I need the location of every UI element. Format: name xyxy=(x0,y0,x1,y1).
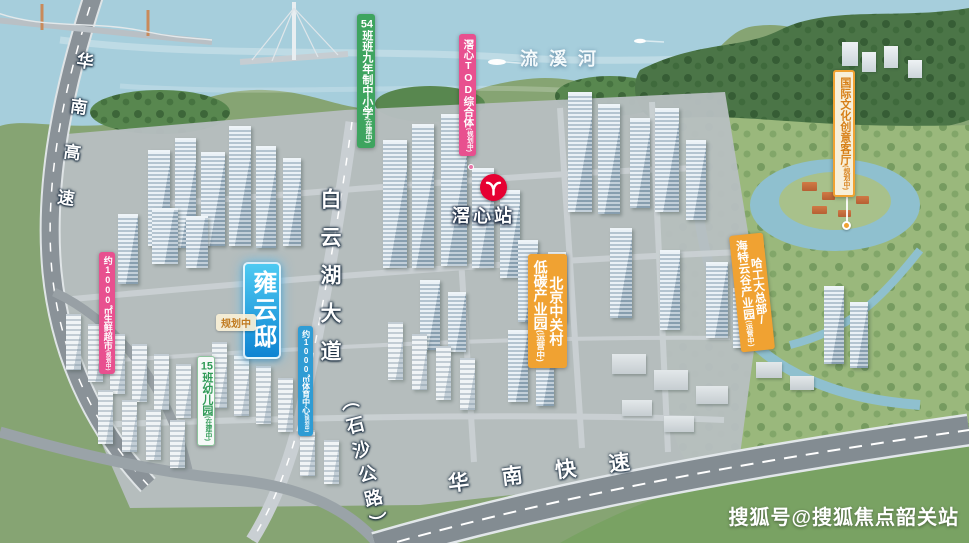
poi-label-school: 54班班九年制中小学(在建中) xyxy=(357,14,375,148)
building xyxy=(436,346,451,400)
river-name: 流溪河 xyxy=(520,45,607,71)
building xyxy=(152,208,178,264)
building xyxy=(696,386,728,404)
status-note: (规划中) xyxy=(842,165,849,190)
school-class-count: 54 xyxy=(361,19,373,30)
building xyxy=(448,292,466,352)
building xyxy=(824,286,844,364)
building xyxy=(383,140,407,268)
building xyxy=(234,354,249,416)
building xyxy=(256,366,271,424)
building xyxy=(612,354,646,374)
status-note: (运营中) xyxy=(745,320,756,347)
kindergarten-class-count: 15 xyxy=(201,361,213,372)
building xyxy=(908,60,922,78)
building xyxy=(176,364,191,418)
building xyxy=(856,196,869,204)
building xyxy=(154,354,169,410)
building xyxy=(132,344,147,402)
building xyxy=(186,216,208,268)
poi-label-culture-hall: 国际文化创意客厅(规划中) xyxy=(833,70,855,197)
pin-dot xyxy=(842,221,851,230)
building xyxy=(122,400,137,452)
building xyxy=(790,376,814,390)
building xyxy=(655,108,679,212)
watermark: 搜狐号@搜狐焦点韶关站 xyxy=(728,501,959,530)
building xyxy=(756,362,782,378)
building xyxy=(256,146,276,248)
building xyxy=(170,420,185,468)
building xyxy=(508,330,528,402)
building xyxy=(66,314,81,370)
building xyxy=(622,400,652,416)
status-note: (运营中) xyxy=(536,330,546,362)
building xyxy=(460,358,475,410)
building xyxy=(706,262,728,338)
metro-station-name: 滘心站 xyxy=(452,202,515,228)
metro-logo-icon xyxy=(480,174,507,201)
project-name-label: 雍云邸 xyxy=(243,262,281,359)
planning-note-label: 规划中 xyxy=(216,314,256,331)
building xyxy=(842,42,858,66)
status-note: (规划中) xyxy=(304,414,309,432)
building xyxy=(300,430,315,476)
status-note: (在建中) xyxy=(364,118,371,143)
building xyxy=(884,46,898,68)
building xyxy=(654,370,688,390)
building xyxy=(812,206,827,214)
status-note: (规划中) xyxy=(105,350,111,370)
building xyxy=(229,126,251,246)
building xyxy=(598,104,620,214)
building xyxy=(664,416,694,432)
buildings-layer xyxy=(0,0,969,543)
building xyxy=(278,378,293,432)
building xyxy=(98,390,113,444)
status-note: (规划中) xyxy=(465,128,472,152)
poi-label-kindergarten: 15班幼儿园(在建中) xyxy=(197,356,215,446)
building xyxy=(660,250,680,330)
building xyxy=(568,92,592,212)
road-name-avenue: 白云湖大道 xyxy=(314,188,344,378)
building xyxy=(412,124,434,268)
station-location-dot xyxy=(468,164,474,170)
building xyxy=(838,210,851,217)
building xyxy=(388,322,403,380)
aerial-masterplan-map: 流溪河 华南高速 白云湖大道 （石沙公路） 华南快速 54班班九年制中小学(在建… xyxy=(0,0,969,543)
building xyxy=(862,52,876,72)
building xyxy=(802,182,817,191)
building xyxy=(283,158,301,246)
poi-label-tod-complex: 滘心TOD综合体(规划中) xyxy=(459,34,476,156)
poi-label-supermarket: 约1000㎡生鲜超市(规划中) xyxy=(99,252,115,374)
building xyxy=(686,140,706,220)
building xyxy=(610,228,632,318)
building xyxy=(412,334,427,390)
building xyxy=(630,118,650,208)
building xyxy=(146,410,161,460)
building xyxy=(850,302,868,368)
poi-label-zgc-lowcarbon-park: 北京中关村 低碳产业园(运营中) xyxy=(528,254,567,368)
building xyxy=(118,214,138,284)
status-note: (在建中) xyxy=(204,416,211,441)
building xyxy=(324,440,339,484)
poi-label-sports-center: 约1000㎡体育中心(规划中) xyxy=(298,326,313,436)
